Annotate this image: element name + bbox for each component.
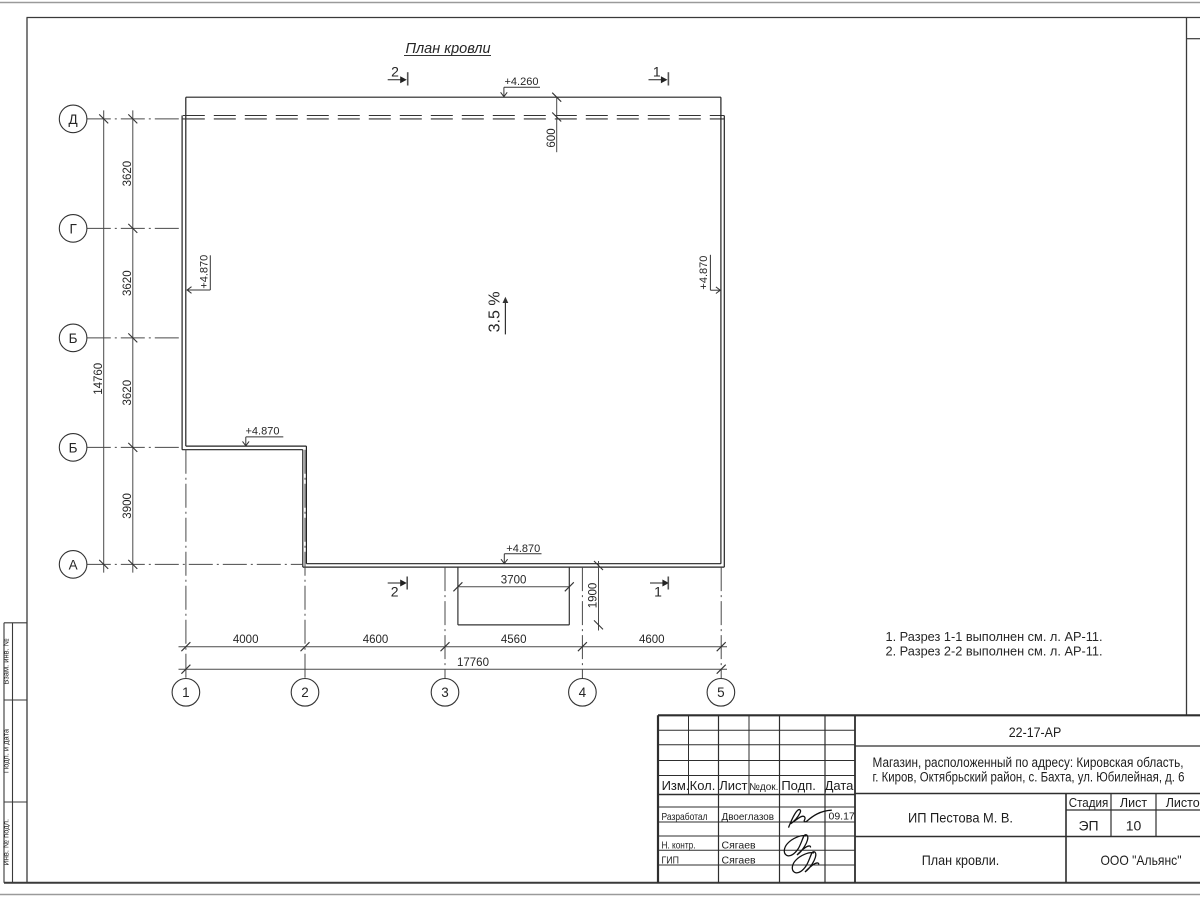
svg-text:2: 2 bbox=[391, 584, 399, 600]
svg-text:+4.260: +4.260 bbox=[505, 76, 539, 88]
svg-text:Дата: Дата bbox=[825, 778, 855, 793]
svg-text:Разработал: Разработал bbox=[662, 811, 708, 823]
svg-text:Изм.: Изм. bbox=[662, 778, 690, 793]
svg-text:Г: Г bbox=[69, 221, 77, 236]
svg-text:Лист: Лист bbox=[719, 778, 747, 793]
svg-text:22-17-АР: 22-17-АР bbox=[1009, 725, 1062, 740]
svg-text:Магазин, расположенный по адре: Магазин, расположенный по адресу: Кировс… bbox=[873, 755, 1184, 770]
svg-text:Кол.: Кол. bbox=[690, 778, 716, 793]
svg-text:3.5 %: 3.5 % bbox=[487, 291, 504, 332]
svg-text:ЭП: ЭП bbox=[1078, 818, 1098, 834]
svg-text:1. Разрез 1-1 выполнен см. л.: 1. Разрез 1-1 выполнен см. л. АР-11. bbox=[886, 629, 1103, 644]
svg-text:А: А bbox=[69, 557, 78, 572]
svg-text:3: 3 bbox=[441, 685, 449, 700]
svg-text:2: 2 bbox=[301, 685, 309, 700]
svg-text:1: 1 bbox=[182, 685, 190, 700]
svg-text:2: 2 bbox=[391, 64, 399, 80]
svg-text:Взам. инв. №: Взам. инв. № bbox=[2, 638, 11, 684]
svg-text:План кровли.: План кровли. bbox=[922, 852, 1000, 868]
svg-text:Листов: Листов bbox=[1166, 796, 1200, 810]
svg-text:Лист: Лист bbox=[1120, 796, 1147, 810]
svg-text:4560: 4560 bbox=[501, 634, 527, 646]
svg-text:4600: 4600 bbox=[363, 634, 389, 646]
svg-text:1: 1 bbox=[653, 64, 661, 80]
svg-text:ИП Пестова М. В.: ИП Пестова М. В. bbox=[908, 810, 1013, 826]
svg-text:Н. контр.: Н. контр. bbox=[662, 840, 696, 852]
svg-text:+4.870: +4.870 bbox=[199, 255, 211, 289]
svg-text:Подп. и дата: Подп. и дата bbox=[2, 728, 11, 773]
svg-text:Б: Б bbox=[69, 331, 78, 346]
svg-text:План кровли: План кровли bbox=[405, 41, 490, 57]
svg-text:1: 1 bbox=[654, 584, 662, 600]
svg-text:Двоеглазов: Двоеглазов bbox=[722, 811, 775, 823]
svg-text:3620: 3620 bbox=[122, 380, 134, 406]
svg-text:3620: 3620 bbox=[122, 161, 134, 187]
svg-text:17760: 17760 bbox=[457, 657, 489, 669]
svg-text:14760: 14760 bbox=[93, 363, 105, 395]
svg-text:+4.870: +4.870 bbox=[698, 256, 710, 290]
svg-text:Стадия: Стадия bbox=[1069, 796, 1109, 810]
svg-text:Д: Д bbox=[69, 112, 78, 127]
svg-text:2. Разрез 2-2 выполнен см. л.: 2. Разрез 2-2 выполнен см. л. АР-11. bbox=[886, 644, 1103, 659]
svg-text:4000: 4000 bbox=[233, 634, 259, 646]
svg-text:3700: 3700 bbox=[501, 574, 527, 586]
svg-text:Сягаев: Сягаев bbox=[722, 840, 757, 852]
svg-text:ООО "Альянс": ООО "Альянс" bbox=[1101, 852, 1182, 868]
svg-text:3620: 3620 bbox=[122, 270, 134, 296]
svg-text:3900: 3900 bbox=[122, 493, 134, 519]
svg-text:ГИП: ГИП bbox=[662, 855, 680, 867]
svg-text:4: 4 bbox=[579, 685, 587, 700]
svg-text:600: 600 bbox=[546, 128, 558, 147]
svg-text:10: 10 bbox=[1126, 818, 1142, 834]
svg-text:Сягаев: Сягаев bbox=[722, 855, 757, 867]
svg-text:№док.: №док. bbox=[749, 782, 778, 793]
svg-text:Инв. № подл.: Инв. № подл. bbox=[2, 819, 11, 866]
svg-text:09.17: 09.17 bbox=[829, 811, 855, 823]
svg-text:+4.870: +4.870 bbox=[246, 426, 280, 438]
svg-text:4600: 4600 bbox=[639, 634, 665, 646]
svg-text:+4.870: +4.870 bbox=[506, 543, 540, 555]
svg-text:г. Киров, Октябрьский район, с: г. Киров, Октябрьский район, с. Бахта, у… bbox=[873, 770, 1185, 785]
svg-text:1900: 1900 bbox=[588, 583, 600, 609]
svg-text:Б: Б bbox=[69, 440, 78, 455]
svg-text:Подп.: Подп. bbox=[781, 778, 816, 793]
svg-text:5: 5 bbox=[717, 685, 725, 700]
